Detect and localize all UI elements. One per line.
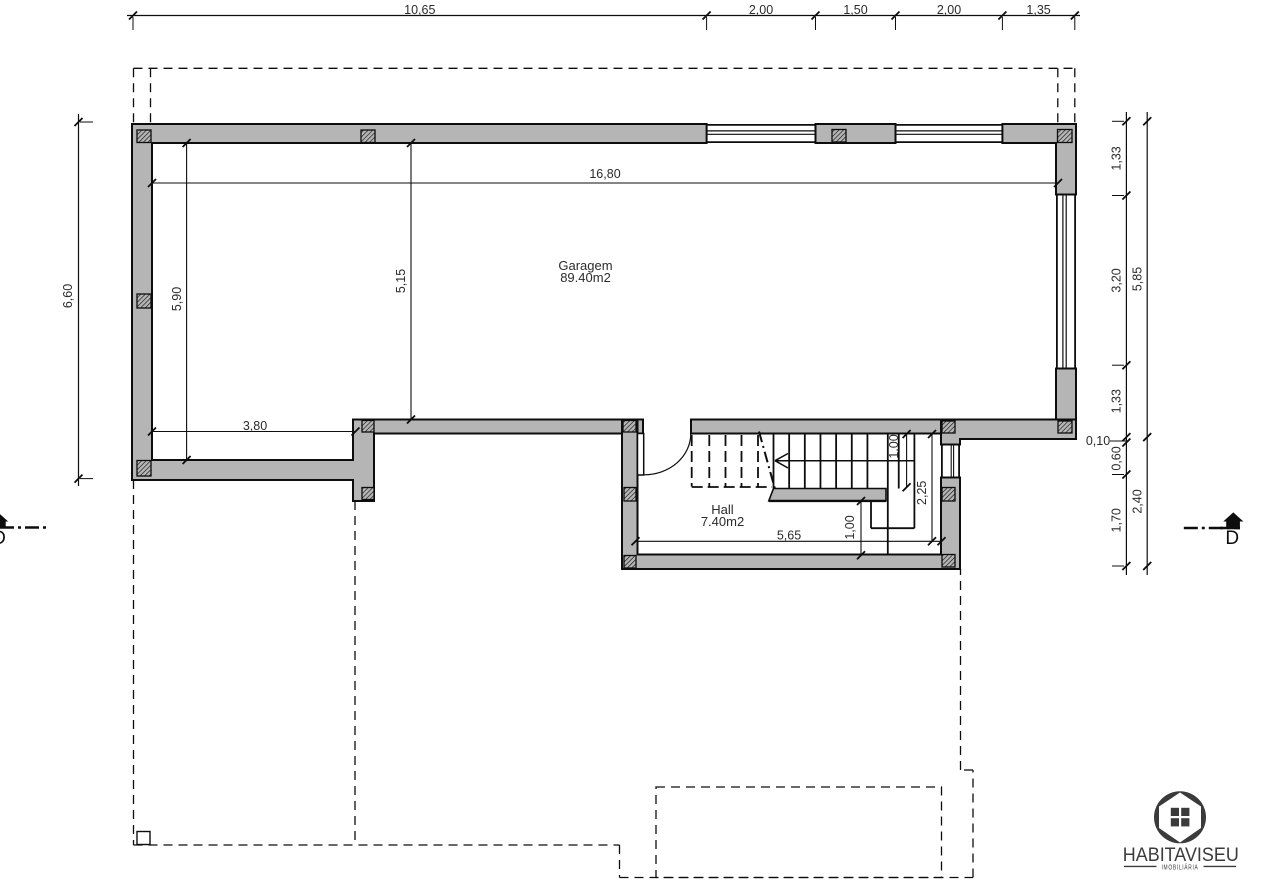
svg-text:HABITAVISEU: HABITAVISEU [1123,845,1239,866]
svg-text:89.40m2: 89.40m2 [560,270,611,285]
svg-text:0,60: 0,60 [1110,446,1124,470]
svg-text:1,33: 1,33 [1110,389,1124,413]
svg-text:5,85: 5,85 [1131,267,1145,291]
svg-text:1,33: 1,33 [1110,146,1124,170]
svg-text:16,80: 16,80 [589,167,620,181]
svg-text:1,00: 1,00 [843,515,857,539]
svg-text:5,65: 5,65 [777,529,801,543]
svg-text:0,10: 0,10 [1086,434,1110,448]
svg-text:3,20: 3,20 [1110,268,1124,292]
svg-text:2,00: 2,00 [749,3,773,17]
svg-text:1,50: 1,50 [843,3,867,17]
svg-text:5,90: 5,90 [170,287,184,311]
svg-text:D: D [0,528,6,549]
svg-text:1,35: 1,35 [1026,3,1050,17]
svg-text:5,15: 5,15 [394,269,408,293]
svg-text:D: D [1225,528,1239,549]
svg-text:10,65: 10,65 [404,3,435,17]
svg-text:2,40: 2,40 [1131,489,1145,513]
svg-text:2,25: 2,25 [915,481,929,505]
svg-text:2,00: 2,00 [937,3,961,17]
svg-text:6,60: 6,60 [61,284,75,308]
svg-text:1,70: 1,70 [1110,508,1124,532]
svg-text:1,00: 1,00 [887,434,901,458]
svg-text:7.40m2: 7.40m2 [701,514,744,529]
svg-text:IMOBILIÁRIA: IMOBILIÁRIA [1162,863,1199,872]
svg-text:3,80: 3,80 [243,419,267,433]
